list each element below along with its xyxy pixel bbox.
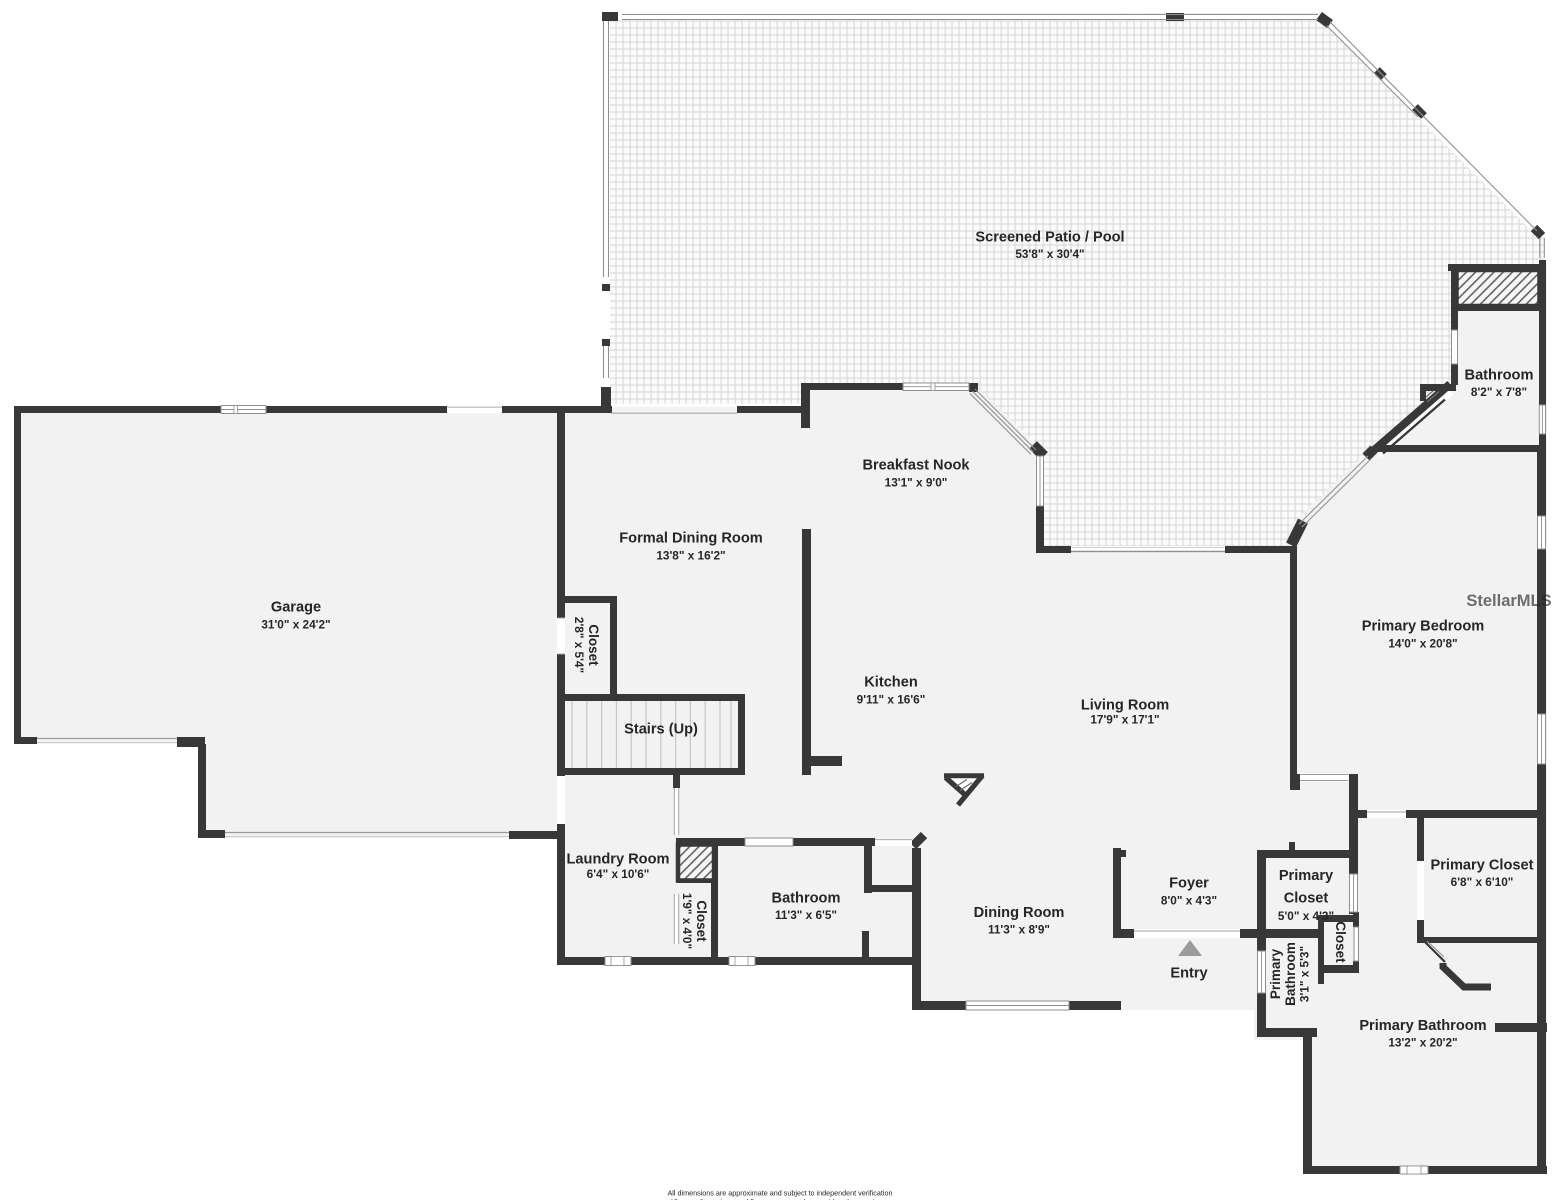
svg-text:Laundry Room: Laundry Room: [567, 852, 670, 868]
svg-text:Living Room: Living Room: [1081, 698, 1169, 714]
svg-text:Bathroom: Bathroom: [1465, 368, 1534, 384]
svg-text:Kitchen: Kitchen: [864, 675, 918, 691]
svg-text:Closet: Closet: [694, 900, 709, 942]
svg-text:Breakfast Nook: Breakfast Nook: [862, 458, 970, 474]
svg-text:13'2" x 20'2": 13'2" x 20'2": [1388, 1036, 1457, 1050]
svg-text:Bathroom: Bathroom: [772, 891, 841, 907]
svg-text:Garage: Garage: [271, 600, 321, 616]
svg-text:All dimensions are approximate: All dimensions are approximate and subje…: [668, 1189, 893, 1198]
svg-text:Screened Patio / Pool: Screened Patio / Pool: [975, 230, 1124, 246]
svg-text:Closet: Closet: [1333, 921, 1348, 963]
svg-text:Primary: Primary: [1279, 868, 1334, 884]
svg-text:1'9" x 4'0": 1'9" x 4'0": [680, 893, 694, 949]
svg-text:Primary: Primary: [1268, 948, 1283, 999]
svg-text:53'8" x 30'4": 53'8" x 30'4": [1015, 247, 1084, 261]
svg-text:17'9" x 17'1": 17'9" x 17'1": [1090, 713, 1159, 727]
svg-text:Primary Bathroom: Primary Bathroom: [1359, 1018, 1486, 1034]
svg-text:StellarMLS: StellarMLS: [1466, 592, 1551, 610]
svg-text:8'2" x 7'8": 8'2" x 7'8": [1471, 385, 1527, 399]
svg-text:31'0" x 24'2": 31'0" x 24'2": [261, 618, 330, 632]
svg-text:6'4" x 10'6": 6'4" x 10'6": [587, 867, 650, 881]
svg-text:13'1" x 9'0": 13'1" x 9'0": [885, 476, 948, 490]
svg-text:Primary Bedroom: Primary Bedroom: [1362, 619, 1484, 635]
svg-text:Closet: Closet: [586, 624, 601, 666]
svg-text:3'1" x 5'3": 3'1" x 5'3": [1298, 946, 1312, 1002]
svg-text:Entry: Entry: [1170, 966, 1208, 982]
svg-text:13'8" x 16'2": 13'8" x 16'2": [656, 549, 725, 563]
svg-text:Dining Room: Dining Room: [974, 905, 1065, 921]
svg-text:5'0" x 4'3": 5'0" x 4'3": [1278, 909, 1334, 923]
svg-text:Foyer: Foyer: [1169, 876, 1209, 892]
svg-text:11'3" x 6'5": 11'3" x 6'5": [775, 908, 837, 922]
svg-text:Bathroom: Bathroom: [1283, 942, 1298, 1006]
svg-text:11'3" x 8'9": 11'3" x 8'9": [988, 923, 1050, 937]
svg-text:8'0" x 4'3": 8'0" x 4'3": [1161, 894, 1217, 908]
svg-text:Stairs (Up): Stairs (Up): [624, 722, 698, 738]
svg-text:Formal Dining Room: Formal Dining Room: [619, 531, 763, 547]
svg-text:6'8" x 6'10": 6'8" x 6'10": [1451, 875, 1514, 889]
svg-text:9'11" x 16'6": 9'11" x 16'6": [857, 693, 926, 707]
svg-text:2'8" x 5'4": 2'8" x 5'4": [572, 617, 586, 673]
svg-text:14'0" x 20'8": 14'0" x 20'8": [1388, 637, 1457, 651]
svg-text:Closet: Closet: [1284, 891, 1329, 907]
svg-text:Primary Closet: Primary Closet: [1430, 858, 1533, 874]
